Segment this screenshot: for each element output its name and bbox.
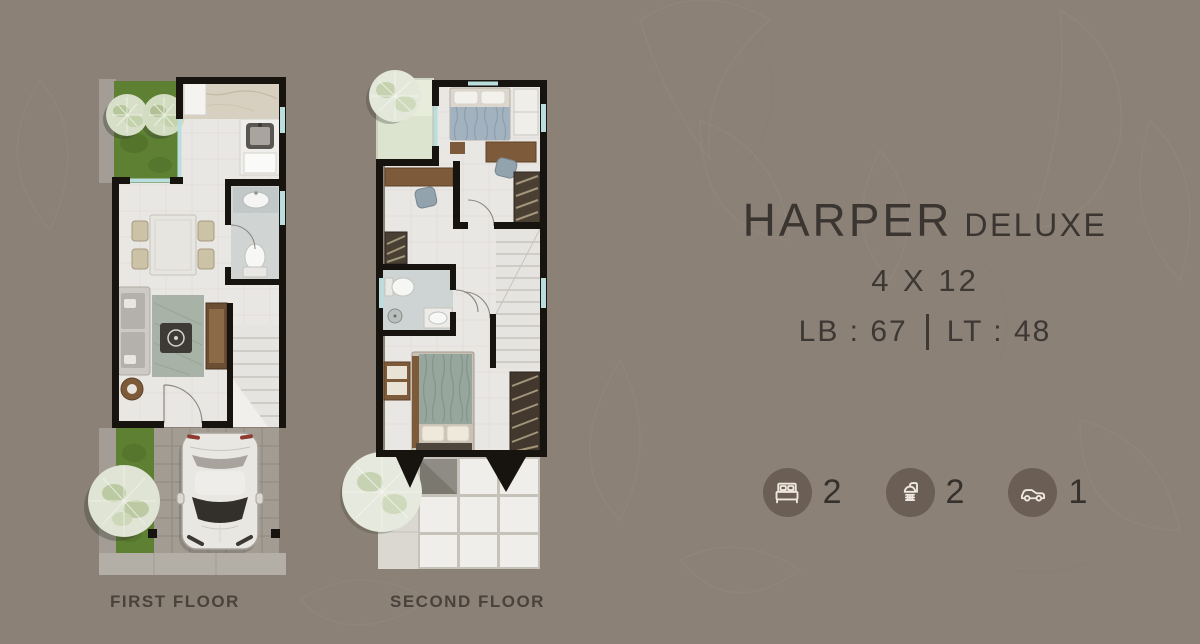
stairs-area xyxy=(496,229,540,369)
bathroom-stat: 2 xyxy=(886,468,965,517)
carport-stat: 1 xyxy=(1008,468,1087,517)
first-floor-label: FIRST FLOOR xyxy=(110,592,240,612)
brochure-page: FIRST FLOOR SECOND FLOOR HARPERDELUXE 4 … xyxy=(0,0,1200,644)
stats-row: 2 2 xyxy=(650,468,1200,517)
bathroom-count: 2 xyxy=(946,473,965,512)
bedroom-stat: 2 xyxy=(763,468,842,517)
bedroom-count: 2 xyxy=(823,473,842,512)
bathroom-area xyxy=(231,185,280,281)
car-icon xyxy=(1008,468,1057,517)
second-floor-plan xyxy=(368,64,553,584)
title-name: HARPER xyxy=(743,194,953,246)
first-floor-plan xyxy=(94,73,286,578)
page-title: HARPERDELUXE xyxy=(650,193,1200,247)
car-top-view xyxy=(177,433,263,553)
area-info: LB : 67 LT : 48 xyxy=(650,314,1200,350)
title-suffix: DELUXE xyxy=(964,207,1107,243)
shower-icon xyxy=(886,468,935,517)
building-area-value: LB : 67 xyxy=(799,315,908,349)
area-separator xyxy=(926,314,929,350)
unit-dimensions: 4 X 12 xyxy=(650,263,1200,299)
second-floor-label: SECOND FLOOR xyxy=(390,592,545,612)
bed-icon xyxy=(763,468,812,517)
carport-count: 1 xyxy=(1068,473,1087,512)
land-area-value: LT : 48 xyxy=(947,315,1052,349)
